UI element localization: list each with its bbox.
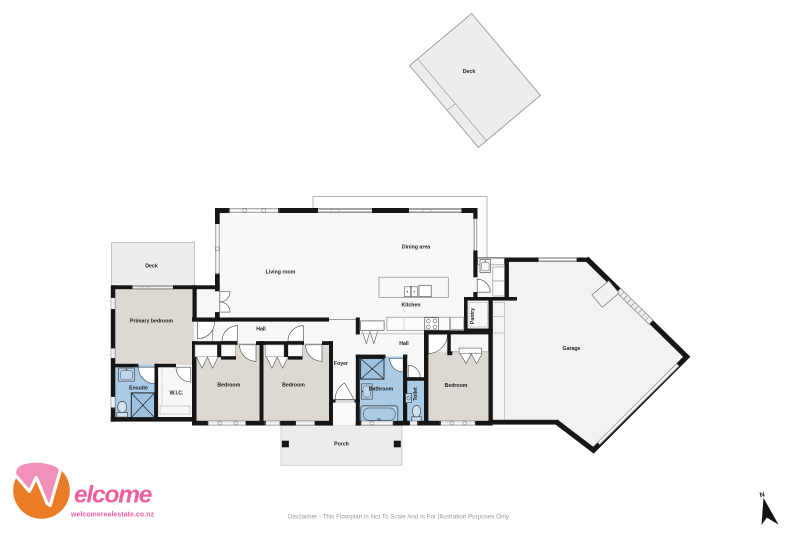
svg-text:Garage: Garage	[563, 346, 581, 352]
svg-text:Hall: Hall	[256, 327, 266, 333]
svg-text:elcome: elcome	[74, 482, 152, 509]
svg-text:Bedroom: Bedroom	[282, 383, 305, 389]
svg-text:Deck: Deck	[463, 69, 476, 75]
svg-text:Disclaimer - This Floorplan Is: Disclaimer - This Floorplan Is Not To Sc…	[288, 514, 510, 521]
svg-text:Dining area: Dining area	[402, 245, 430, 251]
svg-text:Hall: Hall	[399, 341, 409, 347]
svg-text:Ensuite: Ensuite	[129, 386, 148, 392]
svg-text:welcomerealestate.co.nz: welcomerealestate.co.nz	[70, 512, 155, 519]
svg-text:Living room: Living room	[266, 270, 296, 276]
svg-text:Deck: Deck	[145, 264, 158, 270]
svg-text:Porch: Porch	[334, 442, 349, 448]
svg-text:Pantry: Pantry	[470, 308, 476, 324]
svg-text:Kitchen: Kitchen	[401, 303, 420, 309]
svg-text:Toilet: Toilet	[413, 387, 419, 401]
svg-text:Primary bedroom: Primary bedroom	[130, 319, 173, 325]
svg-text:Foyer: Foyer	[334, 361, 348, 367]
svg-text:Bedroom: Bedroom	[445, 383, 468, 389]
svg-text:Bathroom: Bathroom	[369, 387, 394, 393]
svg-text:W.I.C.: W.I.C.	[169, 391, 184, 397]
svg-text:Bedroom: Bedroom	[217, 383, 240, 389]
